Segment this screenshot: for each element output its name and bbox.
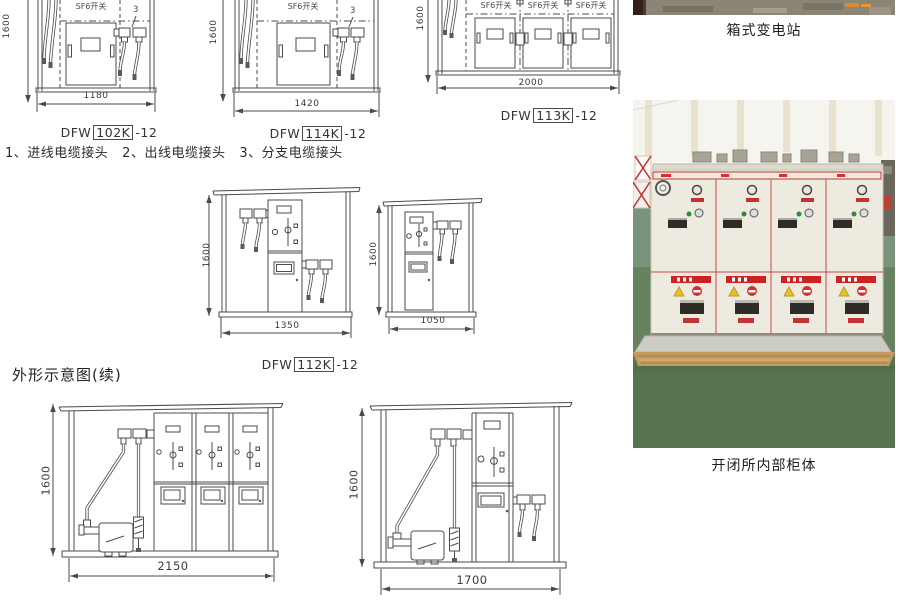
model-prefix: DFW [61, 125, 92, 140]
model-suffix: -12 [135, 125, 157, 140]
callout-3: 3 [350, 6, 355, 16]
photo-box-substation [633, 0, 895, 15]
drawing-2150 [50, 404, 283, 583]
photo-switchgear-image [633, 100, 895, 448]
photo-pressure-gauge-large [656, 181, 670, 195]
photo-wood-plank [633, 352, 895, 366]
model-label-dfw113k: DFW113K-12 [470, 93, 610, 138]
section-title: 外形示意图(续) [12, 364, 122, 385]
photo-switchgear [633, 100, 895, 448]
width-dim-a: 1180 [74, 91, 118, 101]
model-code-box: 114K [302, 126, 342, 141]
photo-pole [633, 0, 643, 15]
width-dim-b: 1420 [285, 99, 329, 109]
catalog-page: 1600 1600 1600 1600 1600 1600 1600 1180 … [0, 0, 900, 613]
photo-caption-substation: 箱式变电站 [633, 20, 895, 40]
model-suffix: -12 [336, 357, 358, 372]
sf6-switch-label: SF6开关 [569, 0, 613, 11]
width-dim-e: 1050 [411, 316, 455, 326]
height-dim-f: 1600 [40, 466, 53, 496]
model-prefix: DFW [501, 108, 532, 123]
drawing-1050 [376, 199, 482, 335]
sf6-switch-label: SF6开关 [69, 1, 113, 12]
width-dim-d: 1350 [265, 321, 309, 331]
cable-joint-legend: 1、进线电缆接头 2、出线电缆接头 3、分支电缆接头 [5, 142, 343, 161]
width-dim-c: 2000 [509, 78, 553, 88]
model-label-dfw112k: DFW112K-12 [231, 342, 371, 387]
height-dim-b: 1600 [209, 17, 219, 47]
width-dim-g: 1700 [450, 573, 494, 587]
photo-window-red-x [633, 156, 651, 208]
photo-concrete-base [635, 336, 891, 352]
height-dim-c: 1600 [416, 3, 426, 33]
height-dim-d: 1600 [202, 240, 212, 270]
width-dim-f: 2150 [151, 559, 195, 573]
model-suffix: -12 [344, 126, 366, 141]
sf6-switch-label: SF6开关 [474, 0, 518, 11]
photo-watermark [845, 3, 859, 7]
height-dim-e: 1600 [369, 239, 379, 269]
model-prefix: DFW [262, 357, 293, 372]
drawing-dfw112k [206, 188, 360, 339]
height-dim-g: 1600 [348, 470, 361, 500]
photo-box-substation-image [633, 0, 895, 15]
model-code-box: 102K [93, 125, 133, 140]
height-dim-a: 1600 [2, 11, 12, 41]
photo-caption-switchgear: 开闭所内部柜体 [633, 455, 895, 475]
model-suffix: -12 [575, 108, 597, 123]
model-code-box: 112K [294, 357, 334, 372]
model-prefix: DFW [270, 126, 301, 141]
model-code-box: 113K [533, 108, 573, 123]
sf6-switch-label: SF6开关 [281, 1, 325, 12]
sf6-switch-label: SF6开关 [521, 0, 565, 11]
callout-3: 3 [133, 5, 138, 15]
drawing-1700 [359, 403, 572, 596]
